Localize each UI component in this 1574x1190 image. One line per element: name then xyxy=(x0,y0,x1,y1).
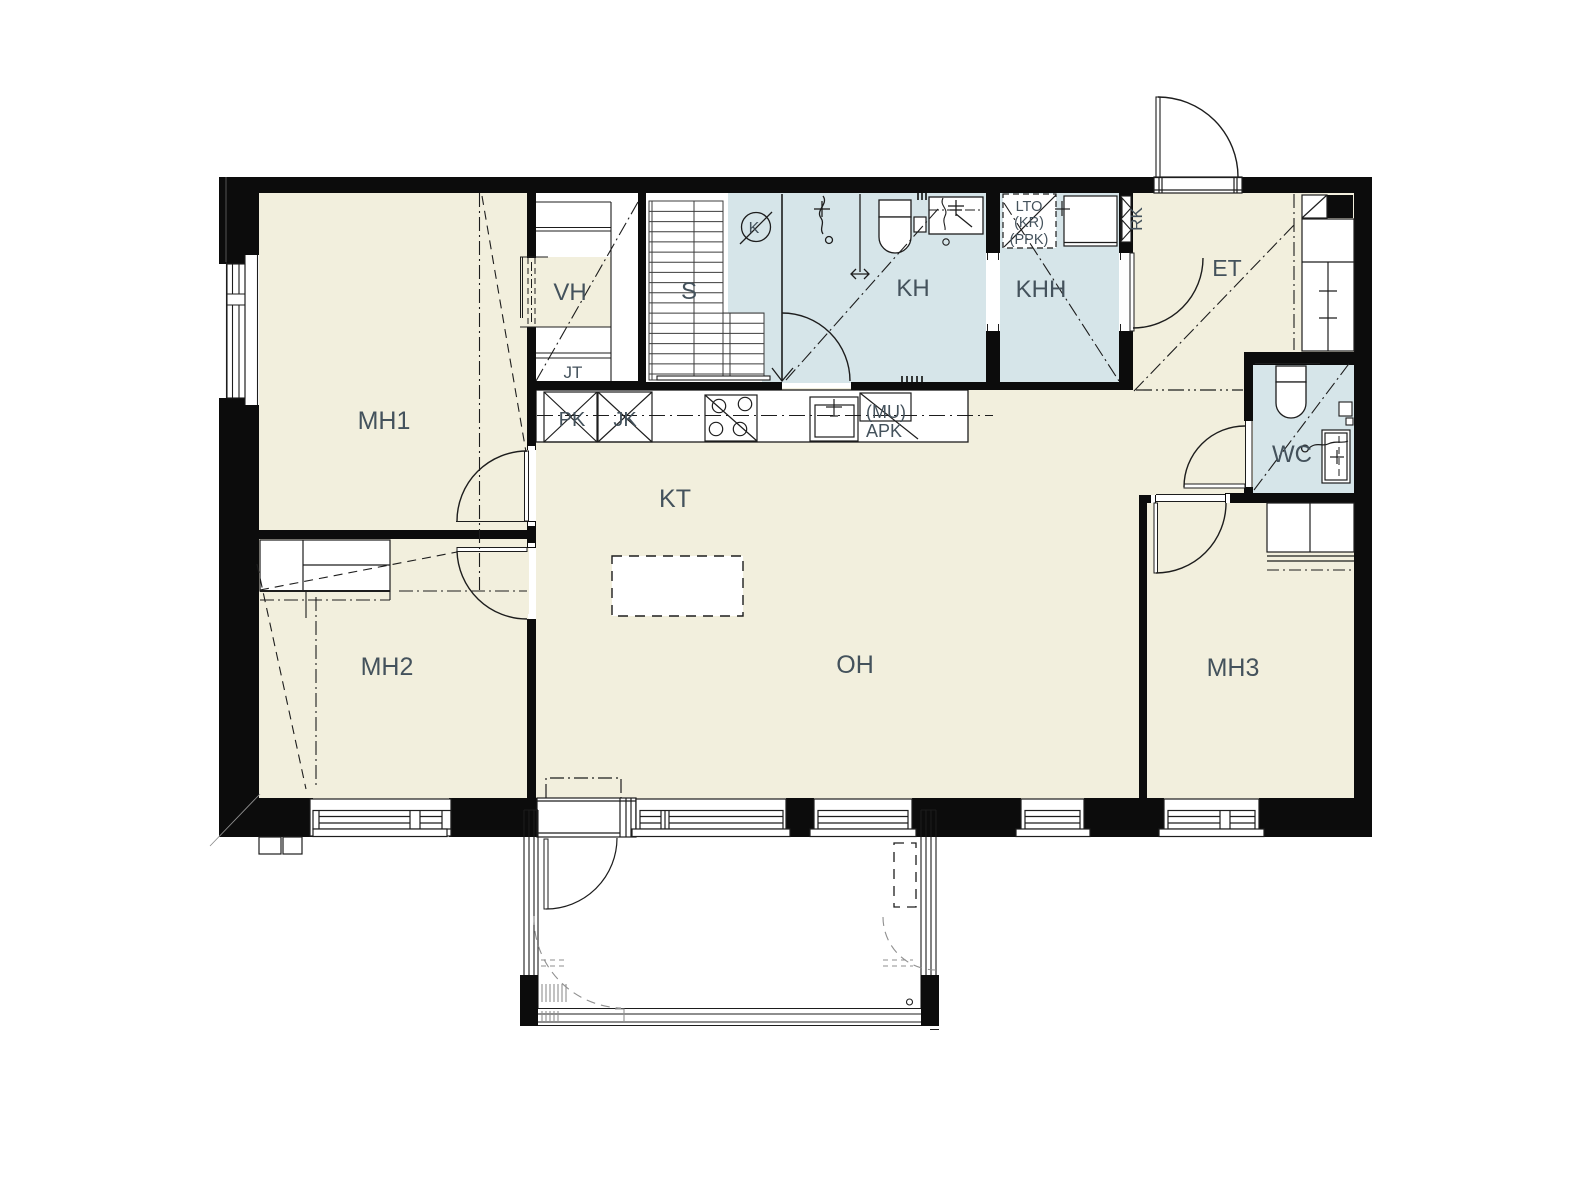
svg-text:MH2: MH2 xyxy=(361,653,414,681)
svg-text:(PPK): (PPK) xyxy=(1010,232,1049,248)
svg-text:JT: JT xyxy=(564,363,583,382)
svg-text:OH: OH xyxy=(836,651,874,679)
svg-text:RK: RK xyxy=(1127,207,1146,231)
svg-text:KHH: KHH xyxy=(1016,276,1067,303)
svg-text:KH: KH xyxy=(896,275,929,302)
svg-text:LTO: LTO xyxy=(1016,199,1043,215)
svg-text:(KR): (KR) xyxy=(1014,215,1044,231)
svg-text:APK: APK xyxy=(866,421,902,441)
svg-text:MH1: MH1 xyxy=(358,407,411,435)
svg-text:(MU): (MU) xyxy=(866,402,906,422)
svg-text:MH3: MH3 xyxy=(1207,654,1260,682)
svg-text:S: S xyxy=(681,278,697,305)
svg-text:WC: WC xyxy=(1272,441,1312,468)
svg-text:VH: VH xyxy=(553,279,586,306)
svg-text:K: K xyxy=(749,220,760,237)
svg-text:JK: JK xyxy=(613,409,637,431)
svg-text:KT: KT xyxy=(659,485,691,513)
svg-text:PK: PK xyxy=(559,409,586,431)
svg-text:ET: ET xyxy=(1212,255,1241,281)
